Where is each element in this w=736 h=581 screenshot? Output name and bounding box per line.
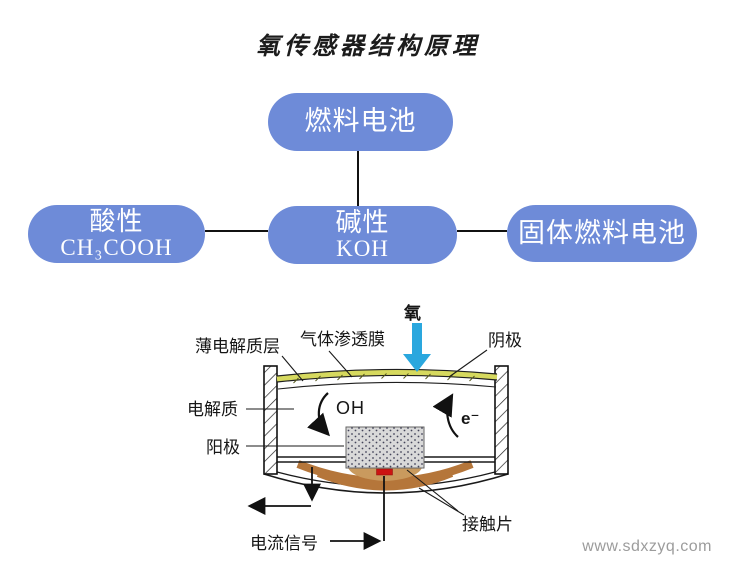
membrane [277, 369, 497, 389]
label-electrolyte: 电解质 [187, 400, 238, 419]
label-contact-piece: 接触片 [462, 515, 513, 534]
sensor-wall-right [495, 366, 508, 474]
oxygen-sensor-infographic: 氧传感器结构原理 燃料电池 酸性 CH₃COOH 碱性 KOH 固体燃料电池 [0, 0, 736, 581]
label-thin-electrolyte-layer: 薄电解质层 [195, 337, 280, 356]
oxygen-arrow-icon [403, 323, 431, 372]
label-cathode: 阴极 [488, 331, 522, 350]
signal-pad [377, 469, 393, 475]
label-hydroxide: OH [336, 398, 365, 418]
electron-flow-arrow-icon [447, 397, 458, 437]
label-electron: e⁻ [461, 409, 479, 428]
watermark: www.sdxzyq.com [0, 538, 712, 556]
label-gas-permeable-membrane: 气体渗透膜 [300, 330, 385, 349]
sensor-wall-left [264, 366, 277, 474]
sensor-schematic: 氧 薄电解质层 气体渗透膜 阴极 电解质 阳极 OH e⁻ 电流信号 接触片 [0, 0, 736, 581]
label-anode: 阳极 [206, 438, 240, 457]
anode-block [346, 427, 424, 468]
label-oxygen: 氧 [403, 303, 421, 323]
oh-flow-arrow-icon [319, 393, 328, 433]
